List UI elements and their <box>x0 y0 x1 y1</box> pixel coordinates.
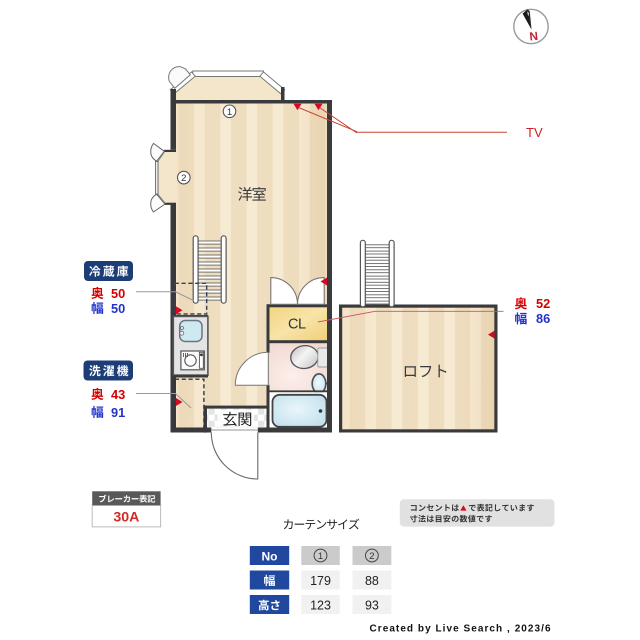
svg-text:2: 2 <box>369 551 374 562</box>
svg-text:93: 93 <box>365 598 379 612</box>
svg-text:TV: TV <box>526 125 543 140</box>
svg-text:50: 50 <box>111 286 125 301</box>
svg-text:91: 91 <box>111 405 125 420</box>
svg-text:86: 86 <box>536 311 550 326</box>
svg-text:88: 88 <box>365 574 379 588</box>
svg-text:2: 2 <box>181 173 186 184</box>
svg-text:1: 1 <box>318 551 323 562</box>
svg-text:30A: 30A <box>113 510 139 526</box>
svg-text:Created by Live Search , 2023/: Created by Live Search , 2023/6 <box>370 624 552 635</box>
svg-text:50: 50 <box>111 301 125 316</box>
svg-text:123: 123 <box>310 598 331 612</box>
svg-text:CL: CL <box>288 317 306 333</box>
svg-text:N: N <box>529 29 539 44</box>
svg-text:179: 179 <box>310 574 331 588</box>
svg-text:43: 43 <box>111 387 125 402</box>
svg-text:52: 52 <box>536 296 550 311</box>
svg-text:1: 1 <box>227 107 232 118</box>
svg-text:No: No <box>262 549 278 563</box>
